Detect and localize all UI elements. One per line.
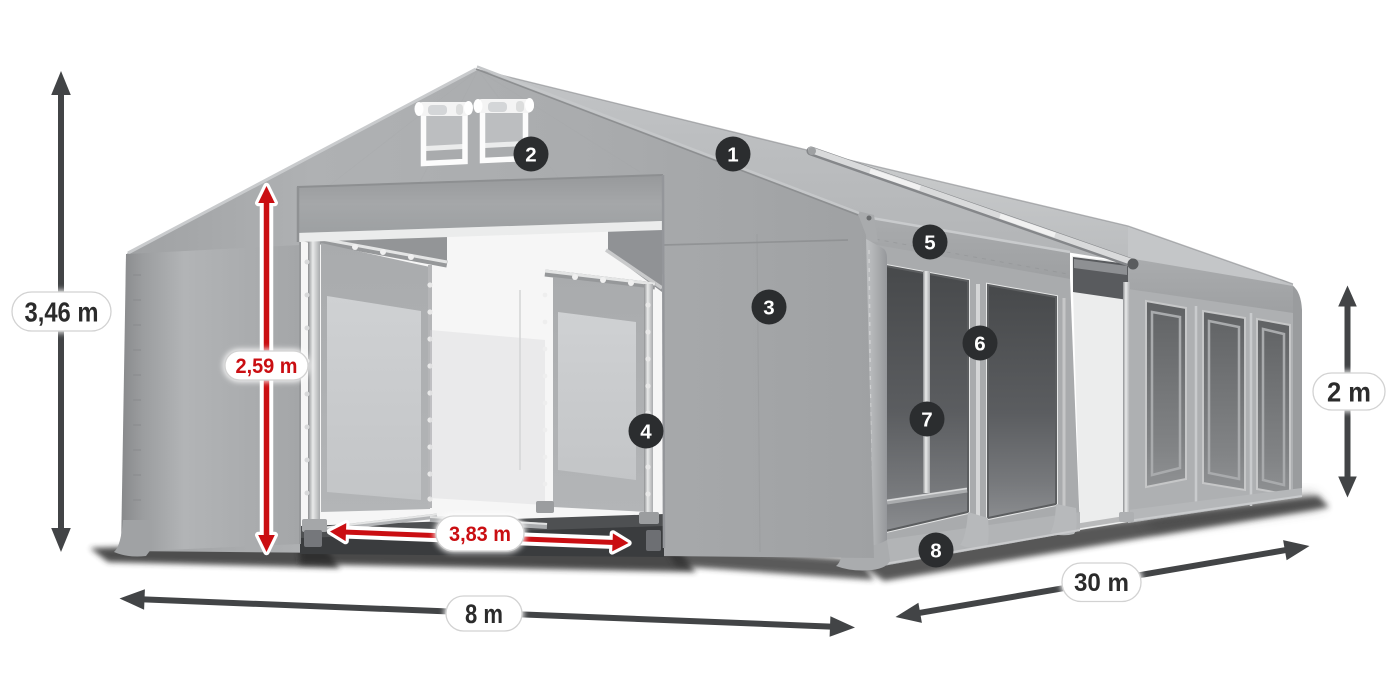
svg-text:3: 3 xyxy=(763,296,774,319)
svg-text:8 m: 8 m xyxy=(465,599,503,629)
svg-text:2: 2 xyxy=(525,143,536,166)
svg-text:3,46 m: 3,46 m xyxy=(25,296,99,327)
svg-text:7: 7 xyxy=(921,408,932,431)
svg-text:1: 1 xyxy=(727,143,738,166)
svg-text:6: 6 xyxy=(974,332,985,355)
svg-text:30 m: 30 m xyxy=(1074,569,1129,597)
svg-text:3,83 m: 3,83 m xyxy=(449,522,511,546)
svg-text:2 m: 2 m xyxy=(1327,376,1371,407)
svg-text:5: 5 xyxy=(924,231,935,254)
svg-text:8: 8 xyxy=(930,539,941,562)
svg-text:4: 4 xyxy=(640,420,652,443)
svg-text:2,59 m: 2,59 m xyxy=(236,355,298,378)
